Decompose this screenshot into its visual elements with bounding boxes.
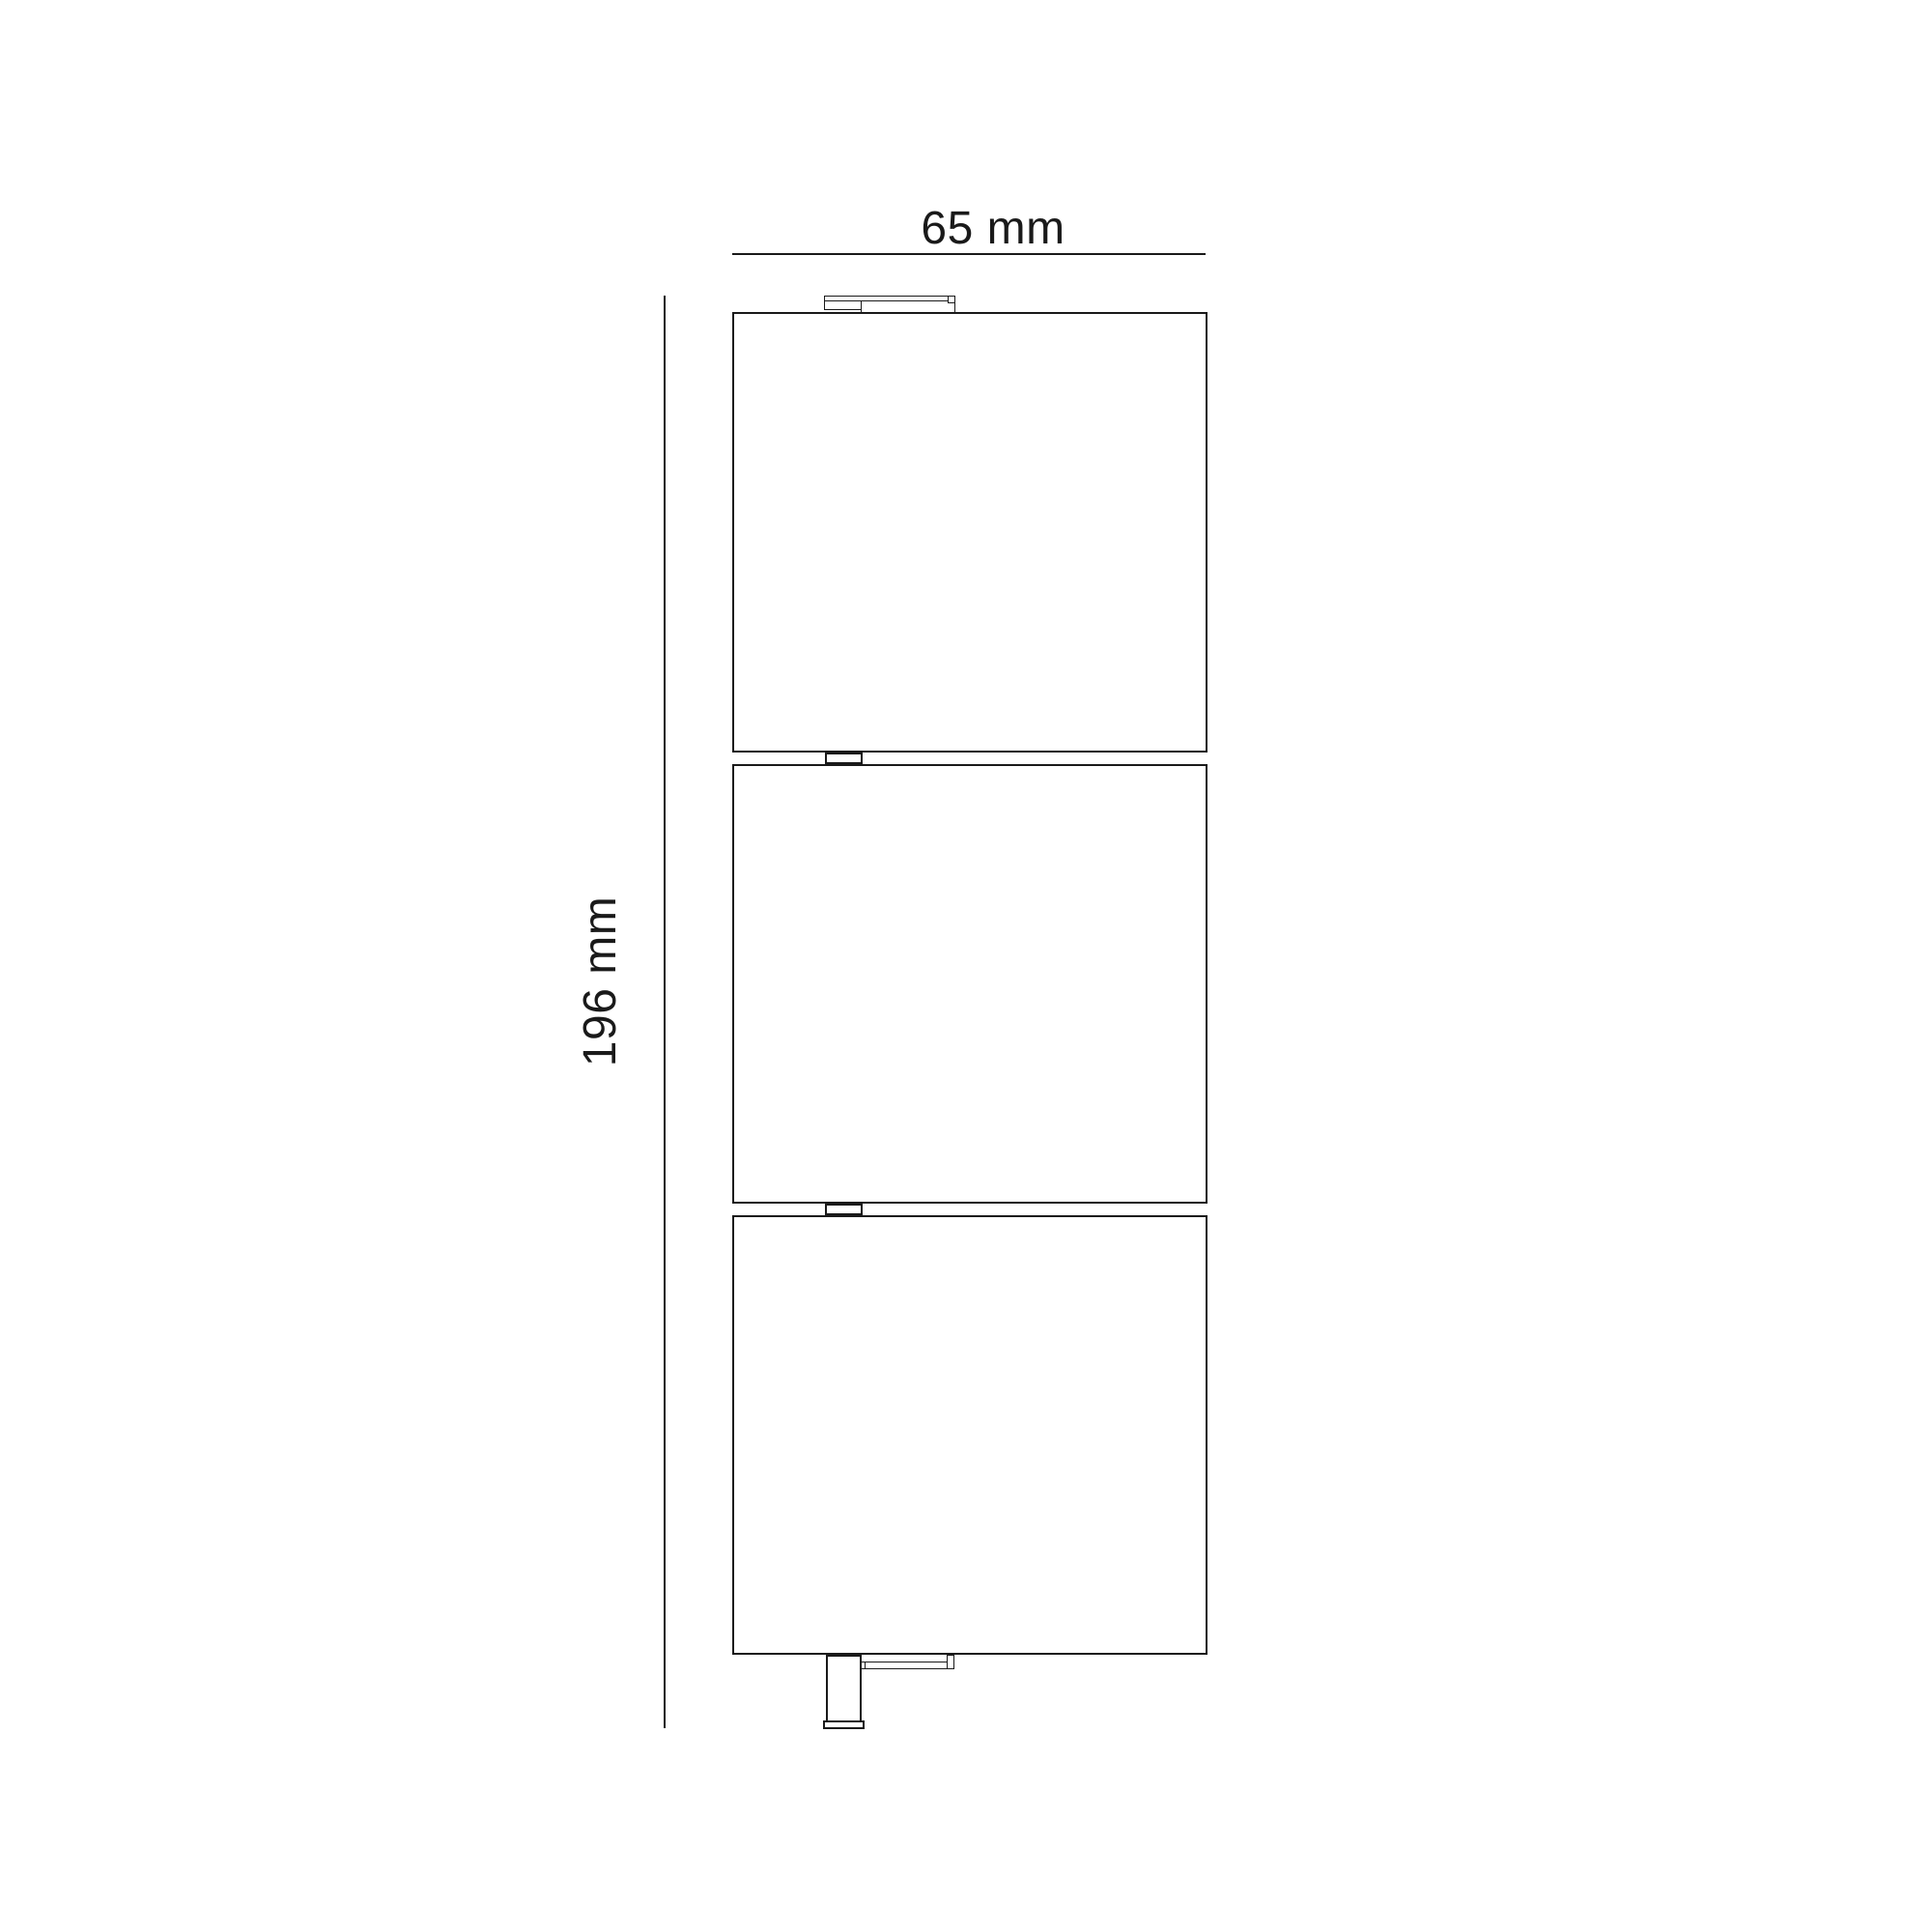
height-dimension-label: 196 mm [578,896,624,1066]
foot-cap [823,1720,865,1729]
bottom-bracket-right-riser [947,1655,954,1669]
panel-bottom [732,1215,1207,1655]
width-dimension-label: 65 mm [921,206,1065,252]
height-dimension-line [664,296,666,1728]
bottom-bracket-rail [858,1662,953,1669]
top-bracket-end-notch [948,296,955,303]
panel-top [732,312,1207,753]
panel-connector-lower [825,1203,863,1215]
panel-middle [732,764,1207,1204]
technical-drawing: 65 mm 196 mm [0,0,1932,1932]
foot [826,1655,862,1725]
panel-connector-upper [825,752,863,764]
top-bracket-left-box [824,300,863,310]
width-dimension-line [732,253,1206,255]
